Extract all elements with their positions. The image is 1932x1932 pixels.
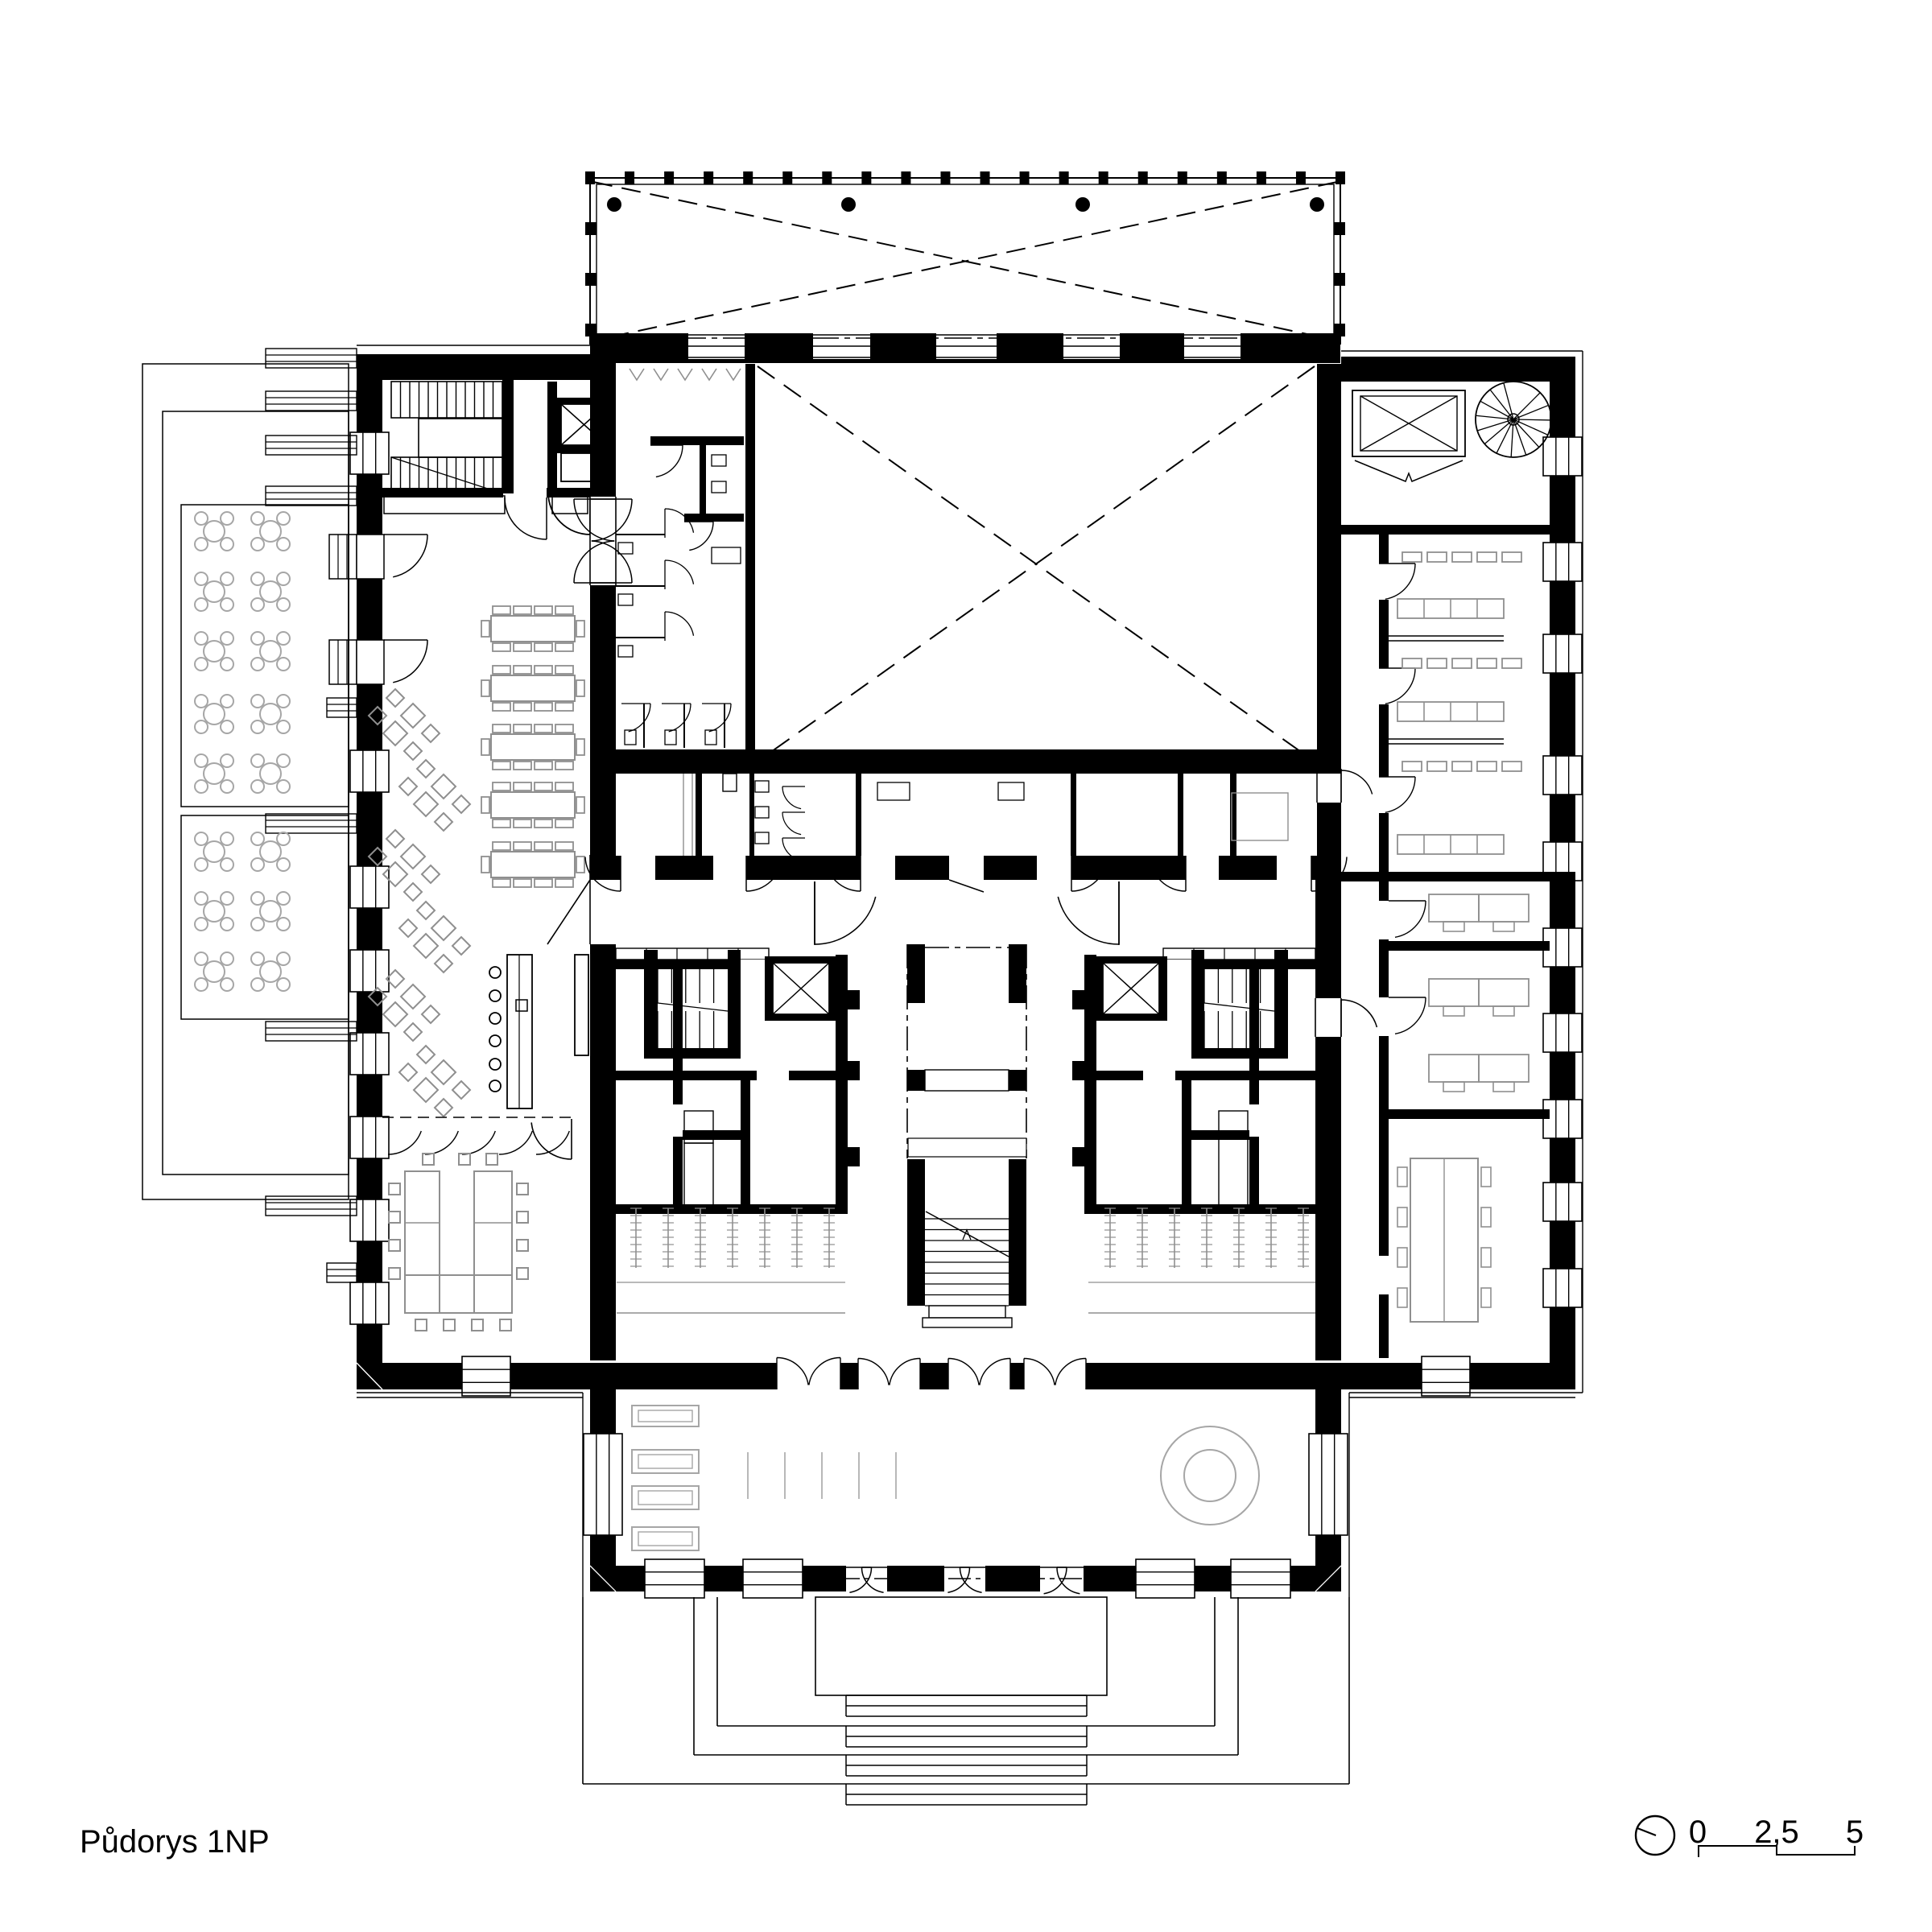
svg-text:2,5: 2,5	[1754, 1814, 1799, 1850]
svg-text:Půdorys 1NP: Půdorys 1NP	[80, 1824, 270, 1860]
svg-text:0: 0	[1689, 1814, 1707, 1850]
svg-text:5: 5	[1846, 1814, 1864, 1850]
